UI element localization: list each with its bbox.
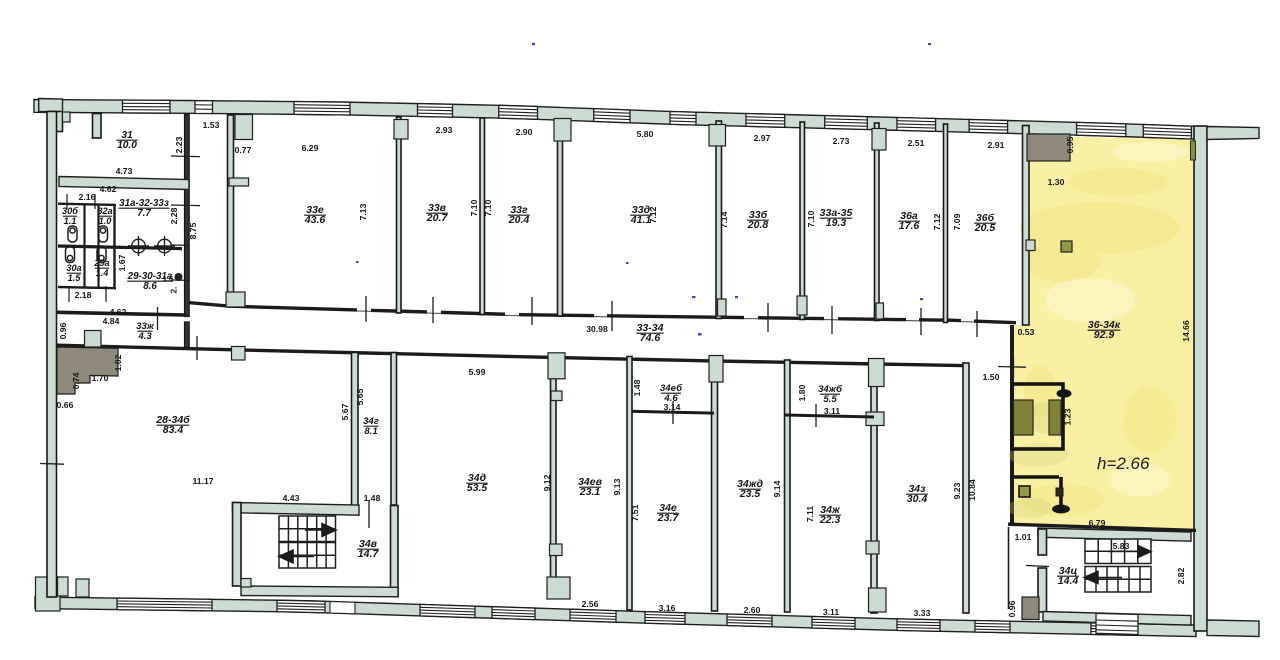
svg-text:3.11: 3.11: [824, 406, 840, 416]
svg-text:1.4: 1.4: [96, 268, 109, 278]
svg-text:4.43: 4.43: [283, 493, 300, 503]
svg-text:23.5: 23.5: [739, 488, 761, 500]
svg-text:1.5: 1.5: [68, 273, 82, 283]
svg-text:10.84: 10.84: [967, 479, 977, 501]
svg-text:20.5: 20.5: [974, 222, 996, 234]
svg-text:0.96: 0.96: [1007, 600, 1017, 617]
svg-text:30.98: 30.98: [586, 324, 608, 334]
svg-text:1.02: 1.02: [113, 354, 123, 371]
svg-text:1.67: 1.67: [117, 254, 127, 271]
svg-text:7.12: 7.12: [932, 213, 942, 230]
svg-text:3.16: 3.16: [659, 603, 676, 613]
svg-text:4.73: 4.73: [116, 166, 133, 176]
svg-text:2.18: 2.18: [75, 290, 92, 300]
svg-text:h=2.66: h=2.66: [1097, 454, 1150, 473]
svg-text:23.1: 23.1: [579, 486, 601, 498]
svg-text:1.30: 1.30: [1048, 177, 1065, 187]
svg-text:23.7: 23.7: [657, 512, 680, 524]
svg-text:19.3: 19.3: [826, 217, 847, 229]
svg-text:1.50: 1.50: [983, 372, 1000, 382]
svg-text:8.75: 8.75: [188, 222, 198, 239]
svg-text:5.65: 5.65: [355, 388, 365, 405]
svg-text:14.4: 14.4: [1058, 575, 1079, 587]
svg-text:1.53: 1.53: [203, 120, 220, 130]
svg-text:0.74: 0.74: [71, 372, 81, 389]
svg-text:2.73: 2.73: [833, 136, 850, 146]
svg-text:4.6: 4.6: [663, 393, 678, 404]
svg-text:7.51: 7.51: [630, 504, 640, 521]
svg-text:14.7: 14.7: [358, 548, 380, 560]
svg-text:11.17: 11.17: [192, 476, 213, 486]
svg-text:3.11: 3.11: [823, 607, 839, 617]
svg-text:7.14: 7.14: [719, 211, 729, 228]
svg-text:2.16: 2.16: [79, 192, 96, 202]
svg-text:5.5: 5.5: [823, 394, 837, 405]
svg-text:32а: 32а: [97, 206, 112, 216]
svg-text:1.48: 1.48: [364, 493, 381, 503]
svg-text:92.9: 92.9: [1094, 329, 1115, 341]
svg-text:5.99: 5.99: [469, 367, 486, 377]
svg-text:8.1: 8.1: [364, 426, 377, 437]
svg-text:1.48: 1.48: [632, 379, 642, 396]
svg-text:30б: 30б: [62, 206, 78, 216]
svg-text:2.56: 2.56: [582, 599, 599, 609]
svg-text:1.23: 1.23: [1063, 408, 1073, 425]
svg-text:20.8: 20.8: [747, 219, 769, 231]
svg-text:3.33: 3.33: [914, 608, 931, 618]
svg-text:1.70: 1.70: [92, 373, 109, 383]
svg-text:8.6: 8.6: [143, 281, 157, 292]
svg-text:7.09: 7.09: [952, 213, 962, 230]
svg-text:1.80: 1.80: [797, 384, 807, 401]
svg-text:9.13: 9.13: [612, 478, 622, 495]
svg-text:2.90: 2.90: [516, 127, 533, 137]
svg-text:7.10: 7.10: [483, 199, 493, 216]
svg-text:14.66: 14.66: [1181, 320, 1191, 342]
svg-text:5.83: 5.83: [1113, 541, 1130, 551]
svg-text:9.14: 9.14: [772, 480, 782, 497]
svg-text:9.23: 9.23: [952, 482, 962, 499]
svg-text:7.10: 7.10: [806, 210, 816, 227]
svg-text:53.5: 53.5: [467, 482, 488, 494]
svg-text:7.7: 7.7: [137, 208, 151, 219]
svg-text:4.3: 4.3: [137, 331, 152, 342]
svg-text:2.91: 2.91: [988, 140, 1005, 150]
svg-text:30а: 30а: [66, 263, 81, 273]
svg-text:6.29: 6.29: [302, 143, 319, 153]
svg-text:2.51: 2.51: [908, 138, 925, 148]
svg-text:4.84: 4.84: [103, 316, 120, 326]
svg-text:1.0: 1.0: [99, 216, 113, 226]
svg-text:22.3: 22.3: [819, 514, 841, 526]
svg-text:5.80: 5.80: [637, 129, 654, 139]
svg-text:9.12: 9.12: [542, 474, 552, 491]
svg-text:2.: 2.: [170, 287, 179, 294]
svg-text:0.77: 0.77: [235, 145, 252, 155]
svg-text:7.13: 7.13: [358, 203, 368, 220]
svg-text:2.28: 2.28: [169, 207, 179, 224]
svg-text:0.53: 0.53: [1018, 327, 1035, 337]
svg-text:0.66: 0.66: [57, 400, 74, 410]
svg-text:1.6: 1.6: [163, 274, 173, 283]
svg-text:41.1: 41.1: [630, 214, 652, 226]
svg-text:5.67: 5.67: [340, 403, 350, 420]
svg-text:4.62: 4.62: [100, 184, 117, 194]
svg-text:2.93: 2.93: [436, 125, 453, 135]
svg-text:2.60: 2.60: [744, 605, 761, 615]
svg-text:2.23: 2.23: [174, 136, 184, 153]
svg-text:2.82: 2.82: [1176, 567, 1186, 584]
svg-text:10.0: 10.0: [117, 140, 137, 151]
svg-text:20.4: 20.4: [508, 214, 530, 226]
svg-text:6.79: 6.79: [1089, 518, 1106, 528]
svg-text:43.6: 43.6: [304, 214, 326, 226]
svg-text:7.10: 7.10: [469, 199, 479, 216]
svg-text:7.11: 7.11: [805, 506, 815, 522]
svg-text:0.96: 0.96: [58, 322, 68, 339]
svg-text:2.97: 2.97: [754, 133, 771, 143]
svg-text:20.7: 20.7: [426, 212, 449, 224]
svg-text:1.1: 1.1: [64, 216, 77, 226]
svg-text:1.01: 1.01: [1015, 532, 1032, 542]
svg-text:74.6: 74.6: [640, 332, 661, 344]
svg-text:30.4: 30.4: [907, 493, 928, 505]
svg-text:17.6: 17.6: [899, 220, 920, 232]
svg-text:29а: 29а: [93, 258, 109, 268]
svg-text:0.95: 0.95: [1065, 136, 1075, 153]
svg-text:83.4: 83.4: [163, 424, 184, 436]
